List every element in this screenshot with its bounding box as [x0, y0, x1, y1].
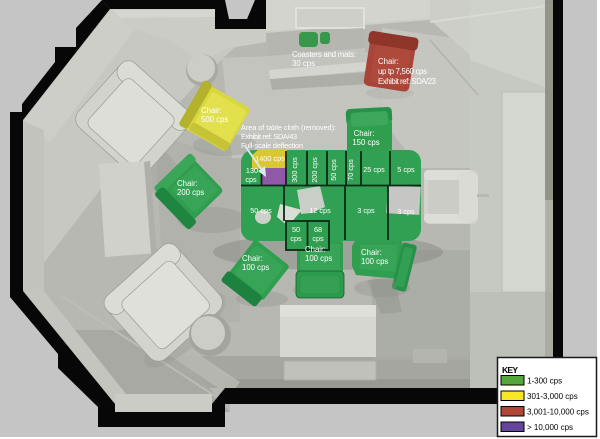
svg-text:301-3,000 cps: 301-3,000 cps: [527, 392, 578, 401]
svg-text:50: 50: [292, 225, 300, 234]
svg-text:68: 68: [314, 225, 322, 234]
svg-text:150 cps: 150 cps: [352, 138, 379, 147]
svg-text:Coasters and mats:: Coasters and mats:: [292, 50, 356, 59]
svg-text:Chair:: Chair:: [354, 129, 375, 138]
svg-text:1-300 cps: 1-300 cps: [527, 377, 562, 386]
svg-text:1400 cps: 1400 cps: [255, 153, 285, 163]
svg-text:300 cps: 300 cps: [290, 157, 299, 183]
svg-text:Exhibit ref: SDA/23: Exhibit ref: SDA/23: [378, 77, 436, 86]
svg-text:100 cps: 100 cps: [242, 263, 269, 272]
svg-text:200 cps: 200 cps: [177, 188, 204, 197]
svg-text:100 cps: 100 cps: [361, 257, 388, 266]
svg-text:Exhibit ref: SDA/43: Exhibit ref: SDA/43: [241, 132, 297, 141]
svg-text:50 cps: 50 cps: [250, 206, 272, 215]
svg-text:500 cps: 500 cps: [201, 115, 228, 124]
svg-text:30 cps: 30 cps: [292, 59, 315, 68]
svg-text:Area of table cloth (removed):: Area of table cloth (removed):: [241, 123, 336, 132]
svg-text:Chair:: Chair:: [242, 254, 263, 263]
svg-text:Chair:: Chair:: [177, 179, 198, 188]
svg-text:Chair:: Chair:: [201, 106, 222, 115]
svg-text:Chair:: Chair:: [305, 245, 326, 254]
svg-text:up tp 7,560 cps: up tp 7,560 cps: [378, 67, 427, 76]
svg-text:cps: cps: [312, 234, 324, 243]
svg-text:50 cps: 50 cps: [329, 159, 338, 181]
svg-text:3 cps: 3 cps: [357, 206, 375, 215]
svg-text:KEY: KEY: [502, 365, 518, 375]
svg-text:3 cps: 3 cps: [397, 207, 415, 216]
svg-text:5 cps: 5 cps: [397, 165, 415, 174]
svg-text:> 10,000 cps: > 10,000 cps: [527, 423, 573, 432]
svg-text:70 cps: 70 cps: [346, 159, 355, 181]
svg-text:130: 130: [246, 166, 258, 175]
svg-text:Chair:: Chair:: [361, 248, 382, 257]
svg-text:3,001-10,000 cps: 3,001-10,000 cps: [527, 408, 589, 417]
svg-text:100 cps: 100 cps: [305, 254, 332, 263]
svg-text:Full-scale deflection: Full-scale deflection: [241, 141, 303, 150]
svg-text:cps: cps: [290, 234, 302, 243]
svg-text:12 cps: 12 cps: [309, 206, 331, 215]
svg-text:Chair:: Chair:: [378, 57, 399, 66]
svg-text:25 cps: 25 cps: [363, 165, 385, 174]
svg-text:cps: cps: [245, 175, 257, 184]
svg-text:200 cps: 200 cps: [310, 157, 319, 183]
